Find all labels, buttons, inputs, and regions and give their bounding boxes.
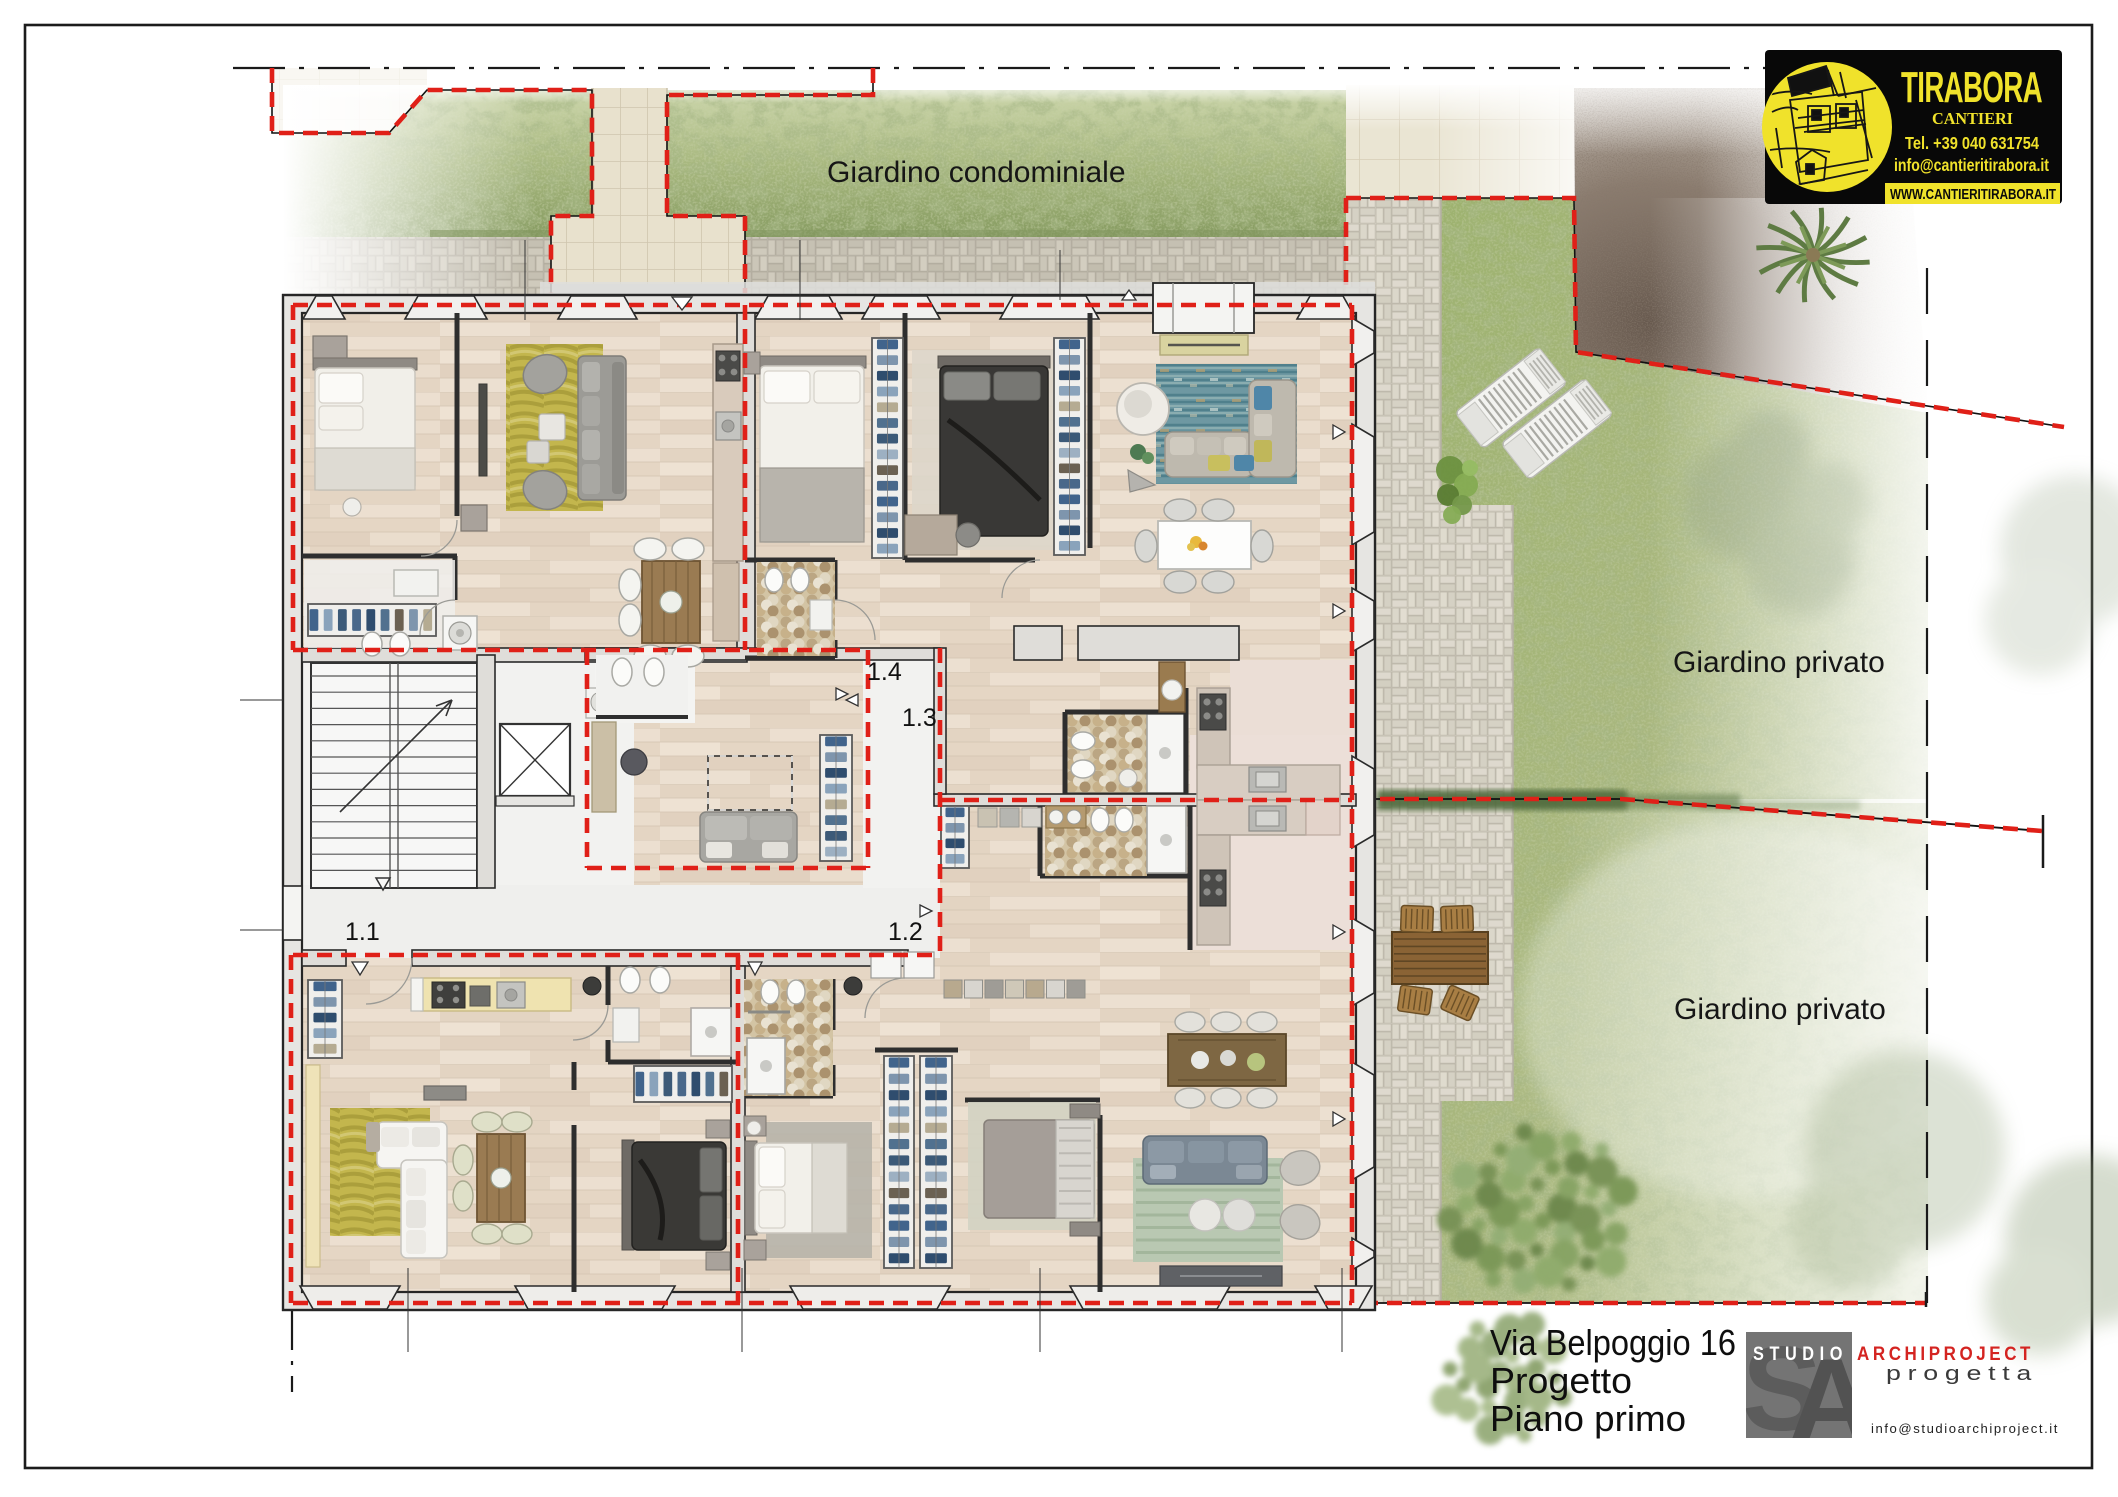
svg-text:1.2: 1.2 — [888, 918, 923, 946]
svg-text:info@studioarchiproject.it: info@studioarchiproject.it — [1871, 1422, 2059, 1436]
svg-text:Giardino privato: Giardino privato — [1673, 646, 1885, 679]
svg-text:STUDIO: STUDIO — [1753, 1344, 1848, 1365]
svg-text:Progetto: Progetto — [1490, 1360, 1632, 1401]
svg-text:CANTIERI: CANTIERI — [1932, 109, 2013, 128]
svg-text:1.3: 1.3 — [902, 704, 937, 732]
svg-text:TIRABORA: TIRABORA — [1901, 63, 2042, 112]
svg-text:WWW.CANTIERITIRABORA.IT: WWW.CANTIERITIRABORA.IT — [1890, 187, 2056, 203]
svg-text:Giardino condominiale: Giardino condominiale — [827, 156, 1126, 189]
svg-text:1.1: 1.1 — [345, 918, 380, 946]
svg-text:Piano primo: Piano primo — [1490, 1398, 1686, 1439]
svg-text:progetta: progetta — [1886, 1363, 2038, 1385]
svg-text:Via Belpoggio 16: Via Belpoggio 16 — [1490, 1322, 1736, 1363]
svg-text:info@cantieritirabora.it: info@cantieritirabora.it — [1894, 155, 2049, 175]
svg-text:1.4: 1.4 — [867, 658, 902, 686]
svg-text:Tel. +39 040 631754: Tel. +39 040 631754 — [1905, 133, 2039, 153]
svg-text:Giardino privato: Giardino privato — [1674, 993, 1886, 1026]
svg-text:ARCHIPROJECT: ARCHIPROJECT — [1857, 1344, 2034, 1365]
